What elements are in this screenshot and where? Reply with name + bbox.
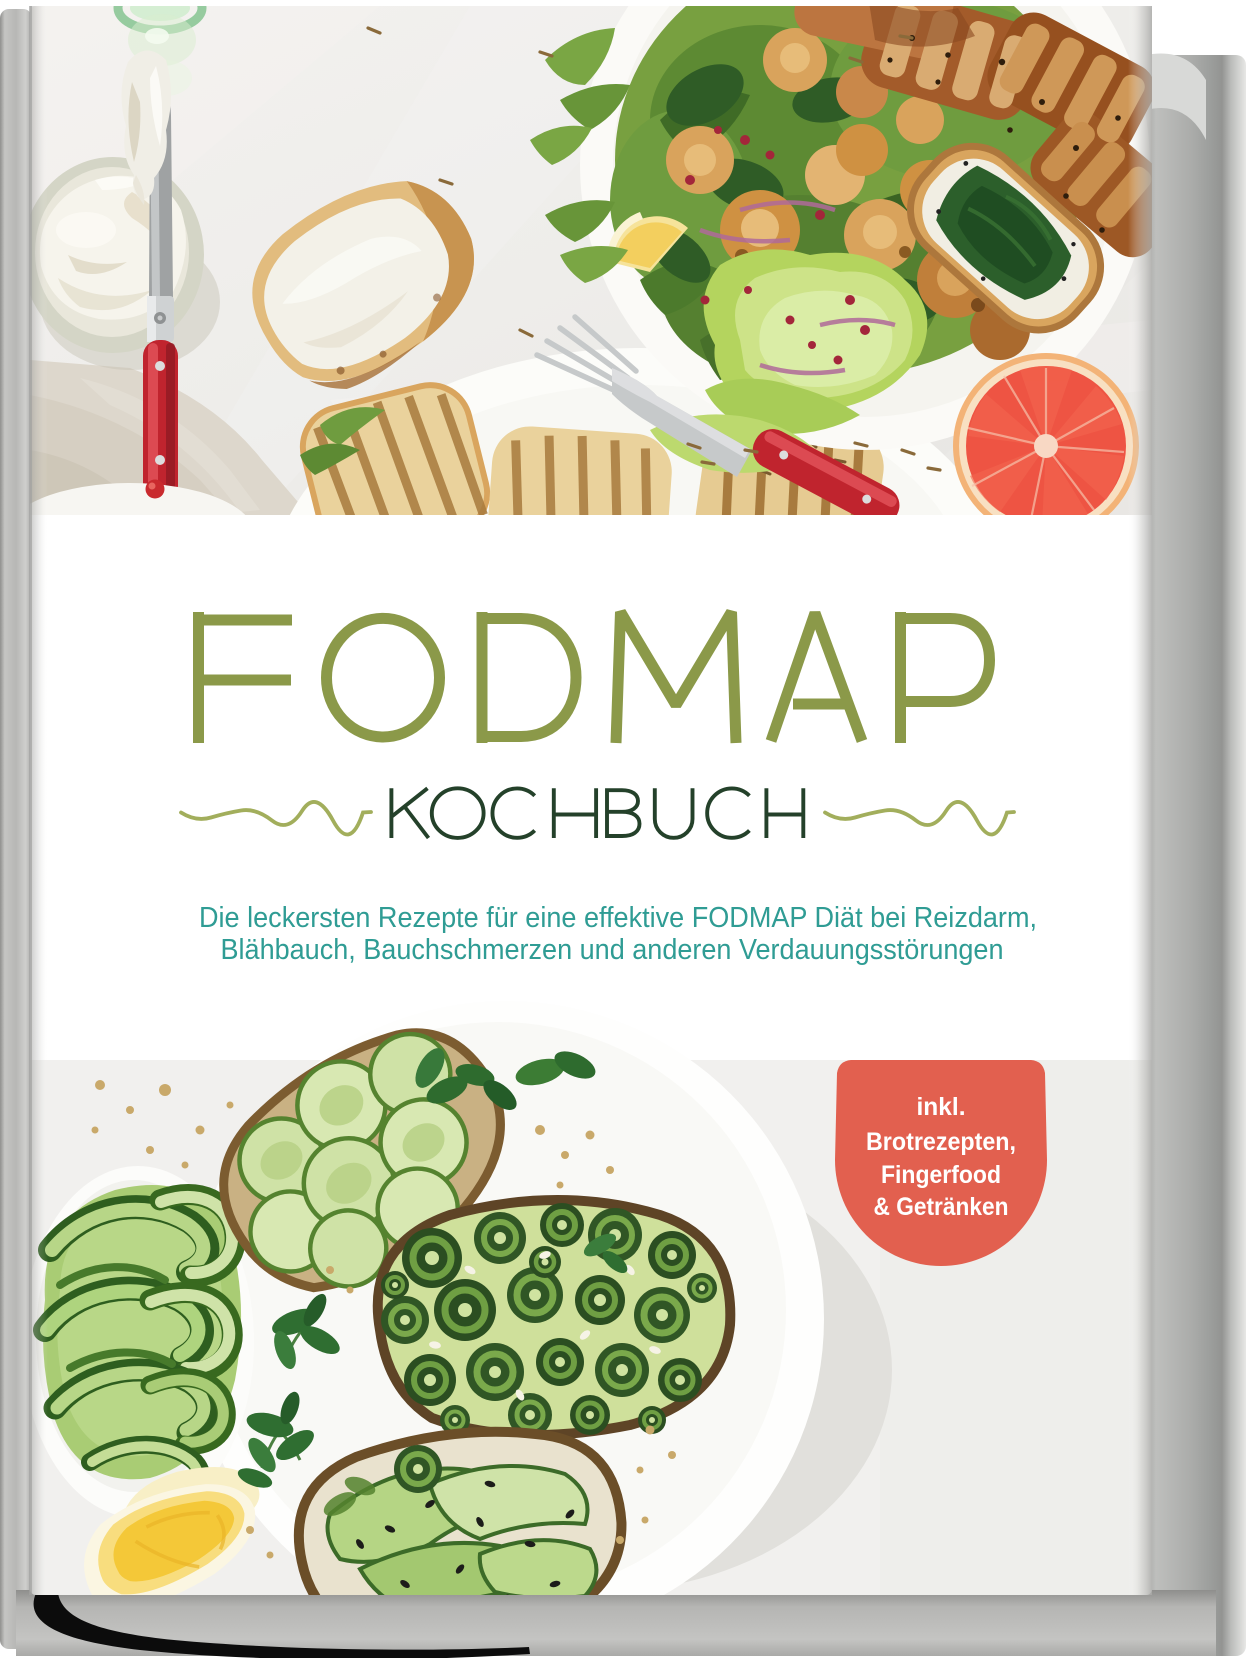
svg-text:Fingerfood: Fingerfood <box>881 1161 1001 1189</box>
svg-text:Die leckersten Rezepte für ein: Die leckersten Rezepte für eine effektiv… <box>199 902 1037 934</box>
svg-text:Brotrezepten,: Brotrezepten, <box>866 1128 1016 1156</box>
svg-text:Blähbauch, Bauchschmerzen und: Blähbauch, Bauchschmerzen und anderen Ve… <box>221 934 1004 966</box>
svg-text:inkl.: inkl. <box>917 1093 966 1121</box>
svg-text:& Getränken: & Getränken <box>874 1193 1009 1221</box>
